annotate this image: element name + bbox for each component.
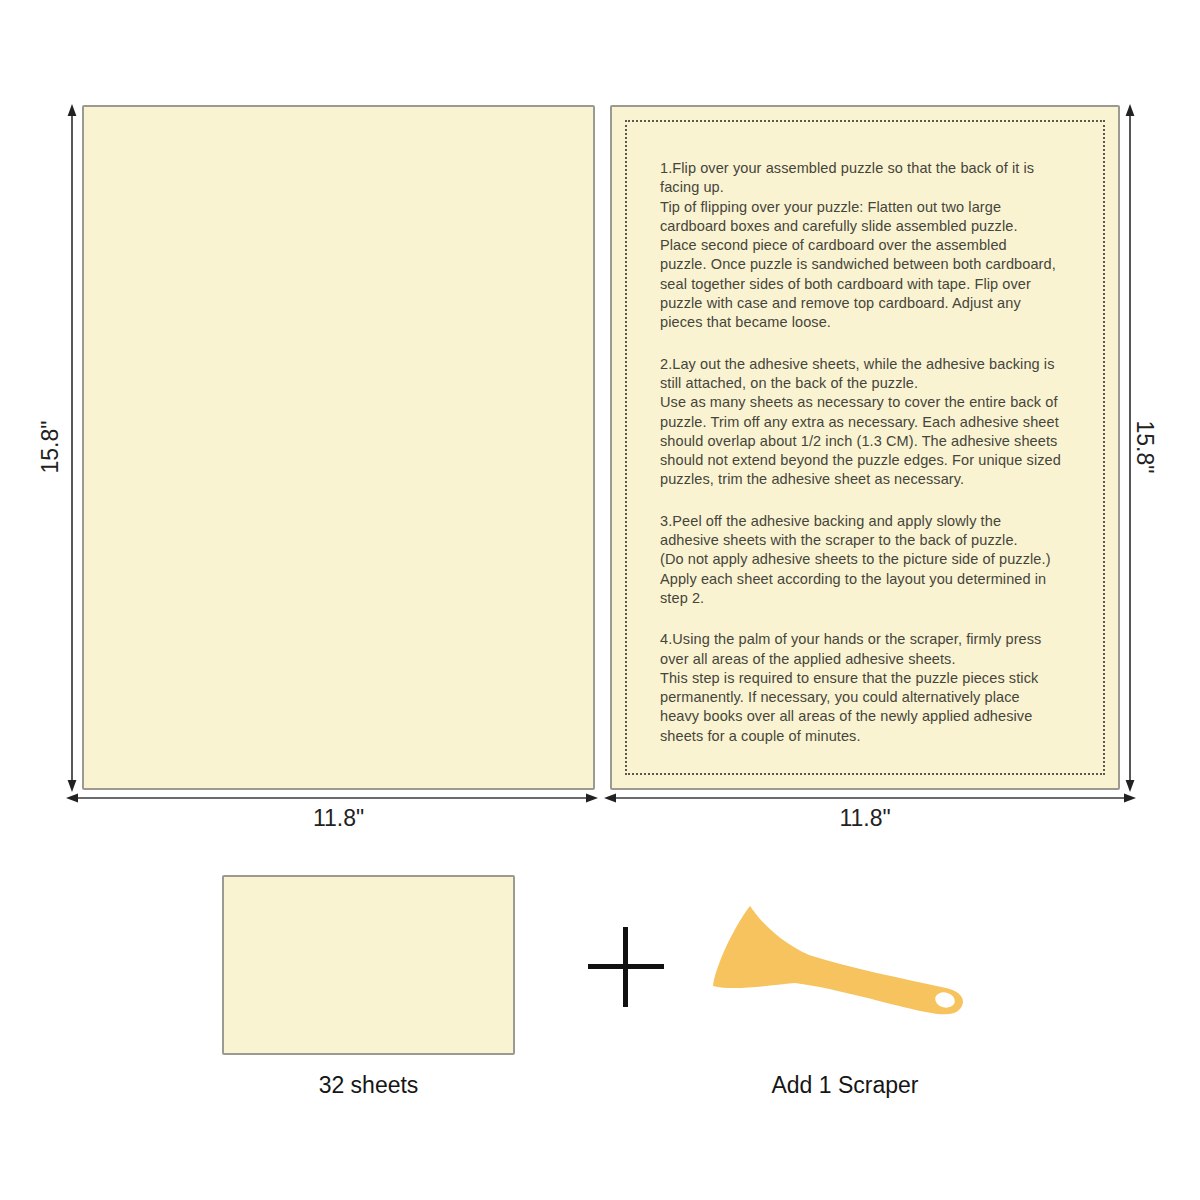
instruction-step-4: 4.Using the palm of your hands or the sc… (660, 630, 1100, 746)
sheet-count-label: 32 sheets (222, 1070, 515, 1100)
instructions-text: 1.Flip over your assembled puzzle so tha… (660, 159, 1100, 768)
plus-icon (588, 927, 664, 1007)
width-dimension-arrow-right (604, 791, 1136, 805)
left-sheet-height-label: 15.8" (36, 397, 64, 497)
width-dimension-arrow-left (66, 791, 598, 805)
scraper-label: Add 1 Scraper (700, 1070, 990, 1100)
puzzle-adhesive-sheets-infographic: 15.8" 11.8" 1.Flip over your assembled p… (0, 0, 1200, 1200)
instruction-step-1: 1.Flip over your assembled puzzle so tha… (660, 159, 1100, 333)
left-sheet-width-label: 11.8" (82, 804, 595, 832)
adhesive-sheet-blank (82, 105, 595, 790)
instruction-sheet: 1.Flip over your assembled puzzle so tha… (610, 105, 1120, 790)
height-dimension-arrow-left (65, 104, 79, 792)
scraper-icon (695, 898, 987, 1048)
right-sheet-height-label: 15.8" (1131, 397, 1159, 497)
right-sheet-width-label: 11.8" (610, 804, 1120, 832)
adhesive-sheet-thumbnail (222, 875, 515, 1055)
instruction-step-2: 2.Lay out the adhesive sheets, while the… (660, 355, 1100, 490)
instruction-step-3: 3.Peel off the adhesive backing and appl… (660, 512, 1100, 608)
